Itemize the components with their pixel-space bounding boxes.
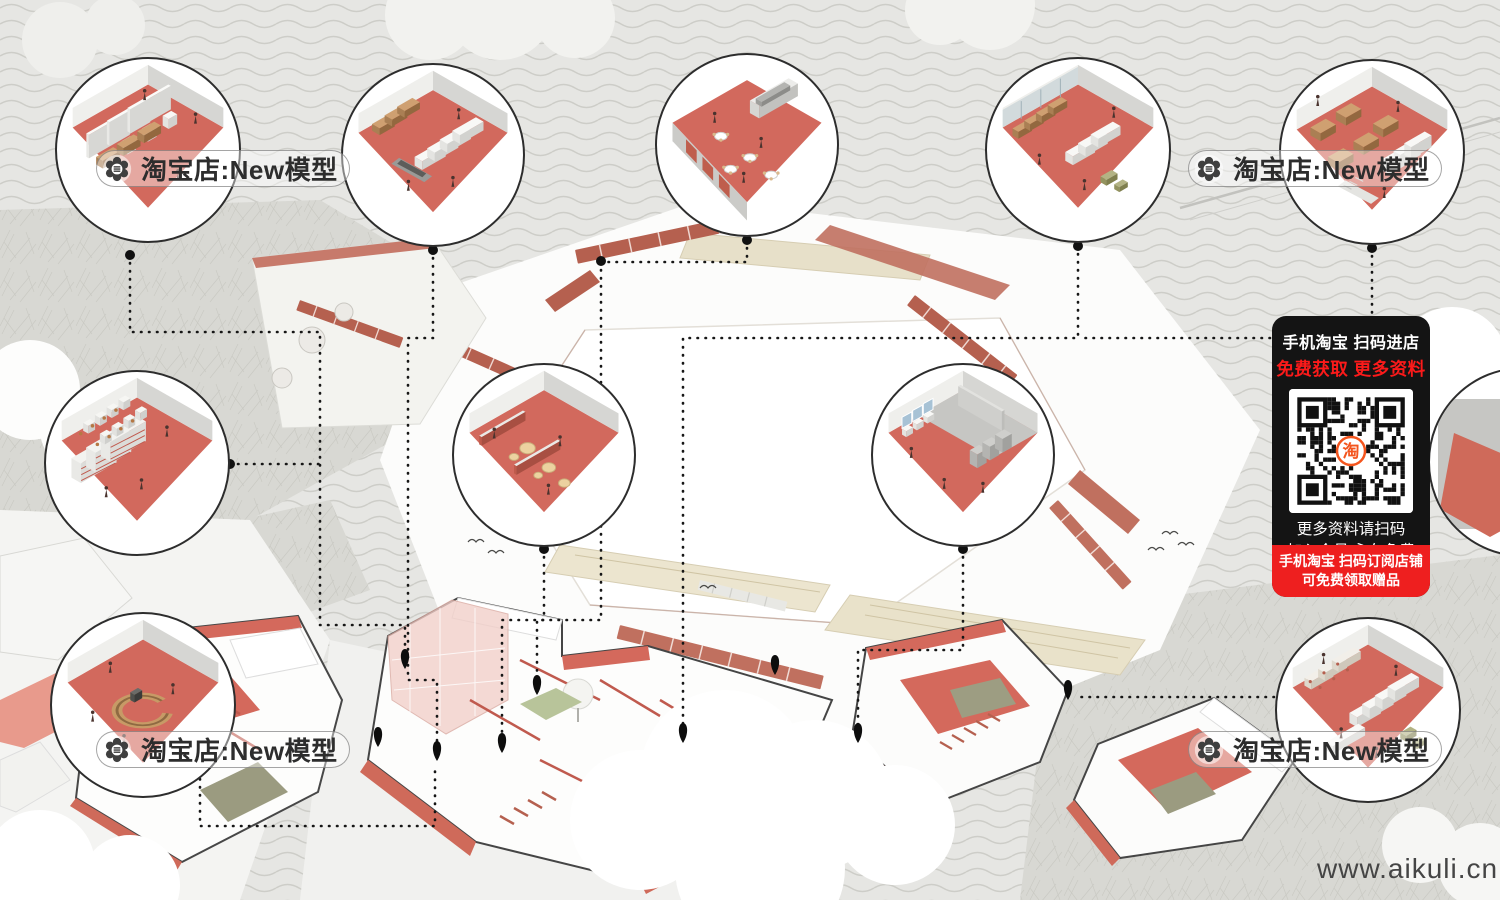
qr-footer-line-1: 手机淘宝 扫码订阅店铺	[1276, 552, 1426, 571]
qr-subheadline: 免费获取 更多资料	[1272, 356, 1430, 381]
callout-terrace-lounge	[452, 363, 636, 547]
callout-reception-hall	[50, 612, 236, 798]
taobao-watermark: 淘宝店:New模型	[96, 731, 350, 768]
qr-note-1: 更多资料请扫码	[1272, 519, 1430, 541]
watermark-label: 淘宝店:New模型	[141, 150, 338, 187]
callout-restrooms	[871, 363, 1055, 547]
qr-code: 淘	[1289, 389, 1413, 513]
gear-icon	[102, 735, 132, 765]
callout-rooftop-restaurant	[655, 53, 839, 237]
callout-library-stacks	[44, 370, 230, 556]
qr-headline: 手机淘宝 扫码进店	[1272, 329, 1430, 353]
taobao-watermark: 淘宝店:New模型	[1188, 150, 1442, 187]
callout-reading-room	[985, 57, 1171, 243]
gear-icon	[1194, 154, 1224, 184]
callout-study-hall	[1275, 617, 1461, 803]
watermark-label: 淘宝店:New模型	[1233, 731, 1430, 768]
gear-icon	[102, 154, 132, 184]
watermark-label: 淘宝店:New模型	[1233, 150, 1430, 187]
taobao-watermark: 淘宝店:New模型	[96, 150, 350, 187]
qr-footer-line-2: 可免费领取赠品	[1276, 571, 1426, 590]
taobao-watermark: 淘宝店:New模型	[1188, 731, 1442, 768]
watermark-label: 淘宝店:New模型	[141, 731, 338, 768]
taobao-qr-panel: 手机淘宝 扫码进店 免费获取 更多资料 淘 更多资料请扫码 加入会员 永久免费 …	[1272, 316, 1430, 597]
callout-retail-escalator	[341, 63, 525, 247]
gear-icon	[1194, 735, 1224, 765]
svg-text:淘: 淘	[1343, 441, 1360, 461]
architecture-poster: 淘宝店:New模型 淘宝店:New模型 淘宝店:New模型 淘宝店:New模型 …	[0, 0, 1500, 900]
website-watermark: www.aikuli.cn	[1317, 853, 1498, 885]
qr-footer: 手机淘宝 扫码订阅店铺 可免费领取赠品	[1272, 545, 1430, 597]
